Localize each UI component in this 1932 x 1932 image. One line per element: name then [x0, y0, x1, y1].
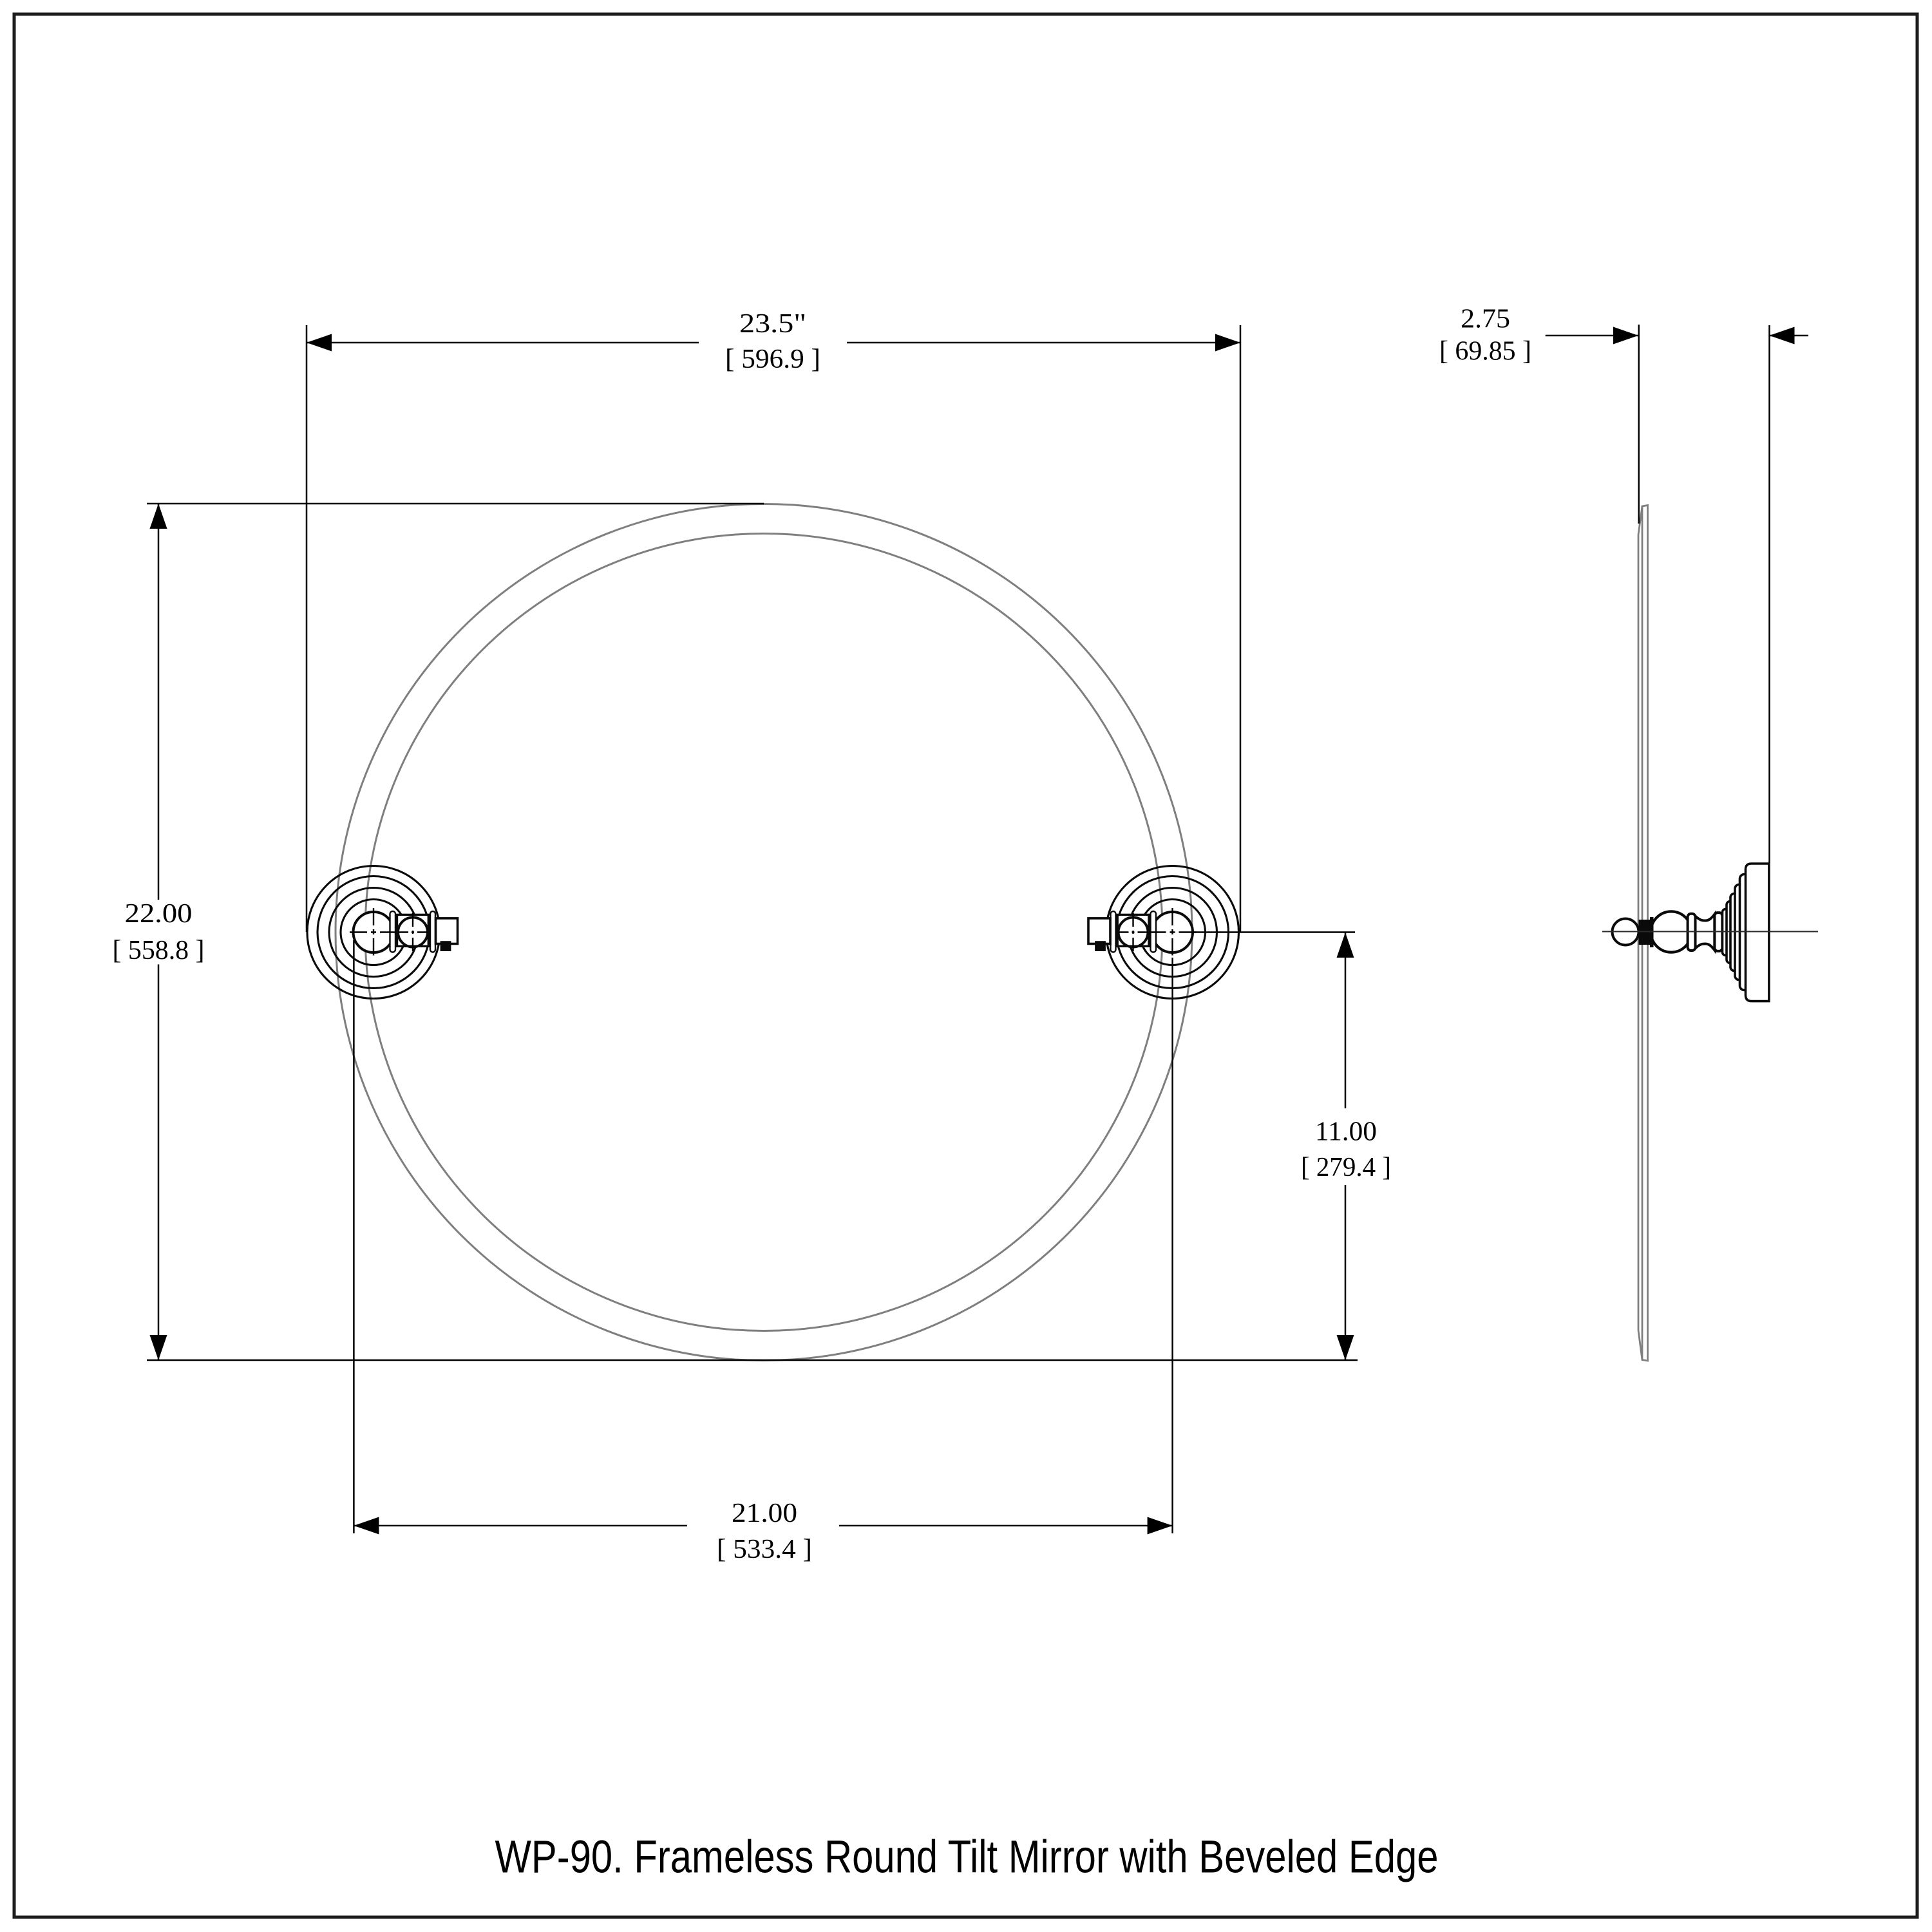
svg-text:[ 596.9 ]: [ 596.9 ] — [725, 345, 820, 374]
svg-text:22.00: 22.00 — [125, 899, 193, 929]
svg-text:2.75: 2.75 — [1461, 305, 1510, 334]
svg-text:WP-90. Frameless Round Tilt Mi: WP-90. Frameless Round Tilt Mirror with … — [495, 1832, 1439, 1883]
svg-text:[ 533.4 ]: [ 533.4 ] — [717, 1535, 812, 1564]
svg-text:[ 558.8 ]: [ 558.8 ] — [113, 936, 205, 965]
svg-text:[ 69.85 ]: [ 69.85 ] — [1439, 336, 1531, 366]
svg-text:[ 279.4 ]: [ 279.4 ] — [1301, 1153, 1391, 1182]
svg-text:11.00: 11.00 — [1315, 1117, 1377, 1147]
svg-text:21.00: 21.00 — [732, 1499, 797, 1528]
svg-text:23.5": 23.5" — [739, 309, 806, 339]
